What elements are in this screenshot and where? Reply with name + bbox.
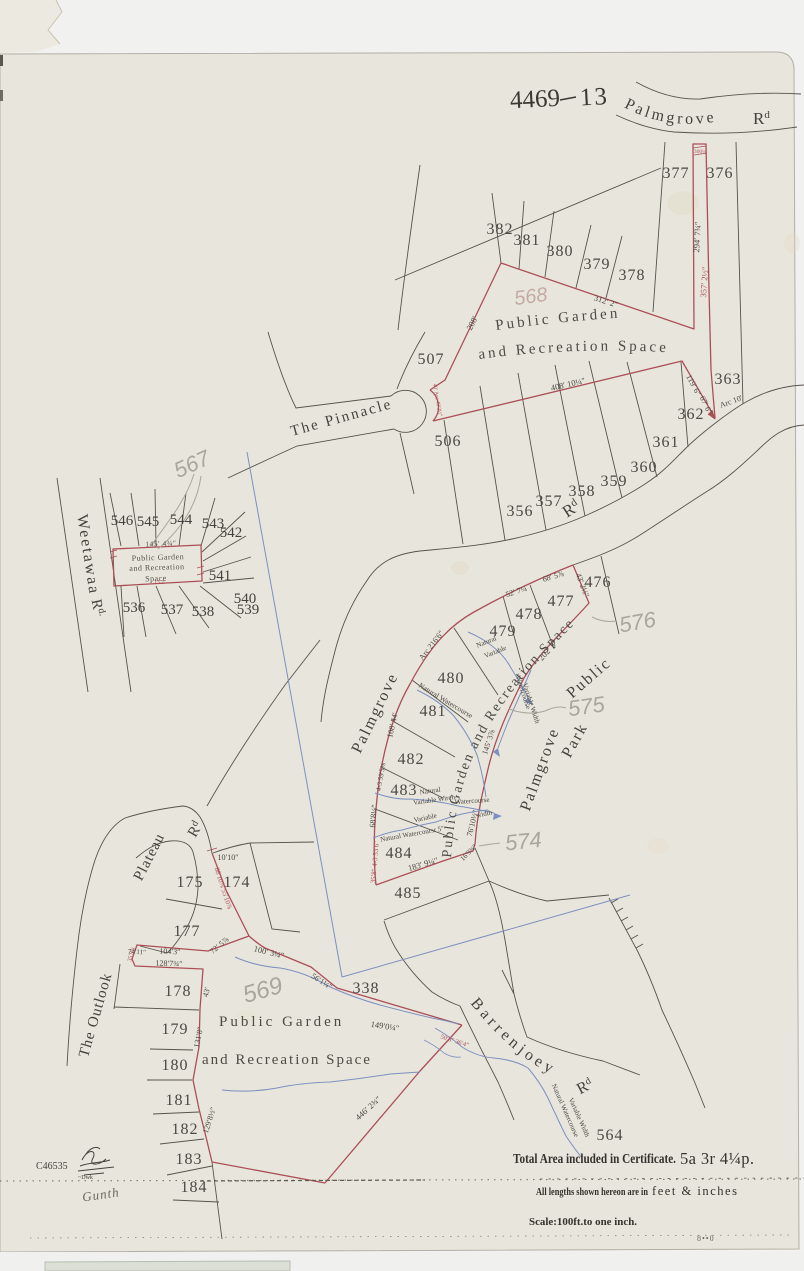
svg-text:181: 181 — [166, 1092, 193, 1109]
svg-text:152′: 152′ — [154, 580, 167, 586]
svg-text:feet & inches: feet & inches — [652, 1184, 737, 1198]
svg-text:Total Area included in Certifi: Total Area included in Certificate. — [513, 1152, 676, 1167]
svg-text:145′ 4¾″: 145′ 4¾″ — [145, 538, 177, 548]
svg-text:~Dwk: ~Dwk — [78, 1175, 93, 1181]
svg-text:4469: 4469 — [509, 85, 560, 115]
svg-text:180: 180 — [162, 1057, 189, 1074]
svg-text:13: 13 — [579, 83, 609, 111]
svg-text:542: 542 — [220, 525, 243, 541]
svg-text:568: 568 — [513, 284, 549, 310]
svg-text:All lengths shown hereon are i: All lengths shown hereon are in — [536, 1186, 648, 1198]
svg-text:544: 544 — [170, 512, 193, 528]
svg-text:380: 380 — [547, 243, 574, 260]
svg-text:and Recreation: and Recreation — [129, 562, 184, 573]
svg-text:C46535: C46535 — [36, 1161, 68, 1172]
svg-text:178: 178 — [165, 983, 192, 1000]
svg-text:536: 536 — [123, 600, 146, 616]
svg-text:Public Garden: Public Garden — [132, 552, 185, 563]
svg-text:537: 537 — [161, 602, 184, 618]
svg-text:480: 480 — [438, 670, 465, 687]
svg-text:377: 377 — [663, 165, 690, 182]
svg-text:485: 485 — [395, 885, 422, 902]
svg-text:8••0: 8••0 — [697, 1234, 715, 1243]
svg-text:382: 382 — [487, 221, 514, 238]
svg-text:Public Garden: Public Garden — [219, 1014, 344, 1030]
svg-text:175: 175 — [177, 874, 204, 891]
svg-text:104′3″: 104′3″ — [159, 946, 181, 956]
svg-text:177: 177 — [174, 923, 201, 940]
svg-text:574: 574 — [504, 827, 543, 856]
svg-text:381: 381 — [514, 232, 541, 249]
svg-text:179: 179 — [162, 1021, 189, 1038]
svg-text:5a 3r 4¼p.: 5a 3r 4¼p. — [680, 1149, 754, 1168]
svg-text:506: 506 — [435, 433, 462, 450]
svg-text:477: 477 — [548, 593, 575, 610]
svg-text:360: 360 — [631, 459, 658, 476]
svg-text:507: 507 — [418, 351, 445, 368]
svg-text:359: 359 — [601, 473, 628, 490]
svg-text:183: 183 — [176, 1151, 203, 1168]
svg-text:361: 361 — [653, 434, 680, 451]
svg-text:338: 338 — [353, 980, 380, 997]
svg-text:Scale:100ft.to one inch.: Scale:100ft.to one inch. — [529, 1216, 637, 1228]
svg-text:539: 539 — [237, 602, 260, 618]
svg-text:128′7¾″: 128′7¾″ — [155, 959, 182, 969]
svg-text:376: 376 — [707, 165, 734, 182]
svg-text:538: 538 — [192, 604, 215, 620]
svg-text:481: 481 — [420, 703, 447, 720]
svg-text:483: 483 — [391, 782, 418, 799]
svg-text:379: 379 — [584, 256, 611, 273]
svg-text:564: 564 — [597, 1127, 624, 1144]
svg-text:300¼: 300¼ — [694, 149, 706, 155]
svg-text:541: 541 — [209, 568, 232, 584]
svg-text:546: 546 — [111, 513, 134, 529]
svg-text:10′10″: 10′10″ — [217, 853, 238, 862]
svg-text:294′ 7¾″: 294′ 7¾″ — [691, 221, 703, 253]
svg-text:545: 545 — [137, 514, 160, 530]
svg-text:478: 478 — [516, 606, 543, 623]
svg-text:484: 484 — [386, 845, 413, 862]
svg-text:482: 482 — [398, 751, 425, 768]
svg-text:and Recreation Space: and Recreation Space — [202, 1052, 372, 1068]
svg-text:182: 182 — [172, 1121, 199, 1138]
svg-text:362: 362 — [678, 406, 705, 423]
svg-text:378: 378 — [619, 267, 646, 284]
svg-text:357: 357 — [536, 493, 563, 510]
svg-text:356: 356 — [507, 503, 534, 520]
svg-text:363: 363 — [715, 371, 742, 388]
